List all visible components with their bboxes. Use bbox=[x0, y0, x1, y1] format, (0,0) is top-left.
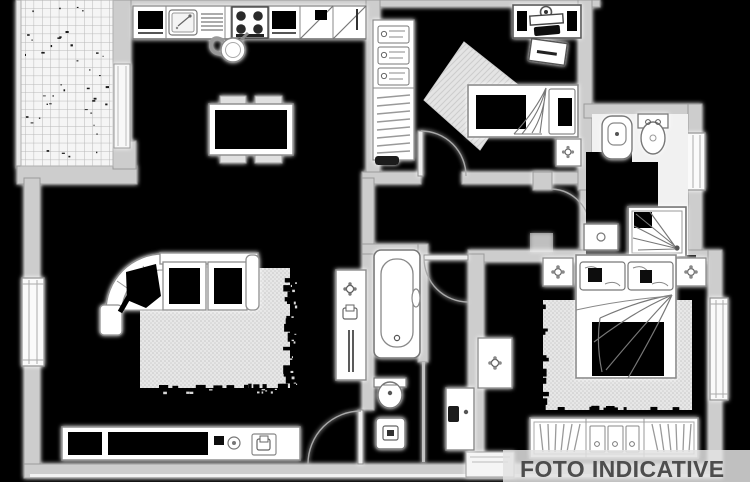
svg-text:FOTO INDICATIVE: FOTO INDICATIVE bbox=[520, 456, 725, 482]
